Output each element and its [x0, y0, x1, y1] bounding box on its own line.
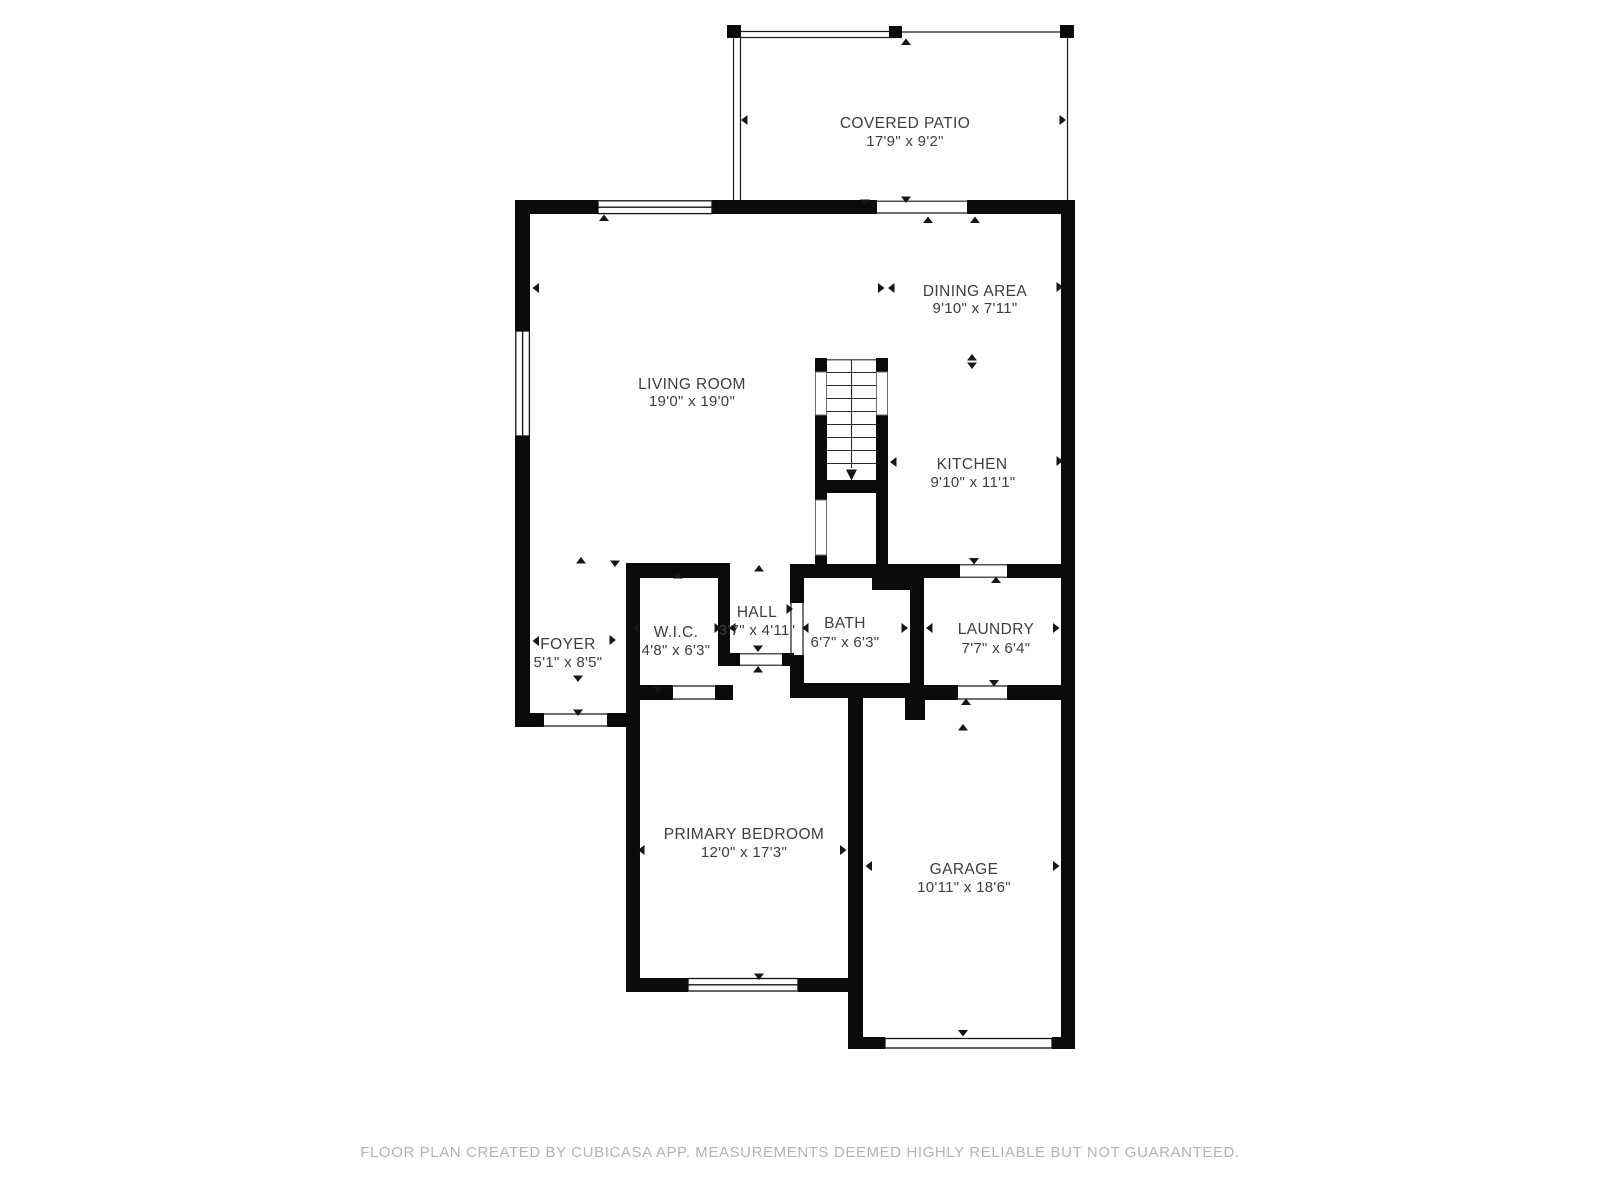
room-wic: W.I.C. 4'8" x 6'3" — [642, 624, 711, 659]
room-dims-living-room: 19'0" x 19'0" — [649, 393, 735, 410]
room-dims-wic: 4'8" x 6'3" — [642, 642, 711, 659]
room-dims-dining-area: 9'10" x 7'11" — [932, 300, 1017, 317]
room-dining-area: DINING AREA 9'10" x 7'11" — [923, 283, 1028, 317]
room-bath: BATH 6'7" x 6'3" — [811, 615, 880, 651]
room-dims-garage: 10'11" x 18'6" — [917, 879, 1011, 896]
room-dims-covered-patio: 17'9" x 9'2" — [866, 133, 944, 150]
footer-disclaimer: FLOOR PLAN CREATED BY CUBICASA APP. MEAS… — [360, 1144, 1240, 1161]
room-dims-hall: 3'7" x 4'11" — [719, 622, 795, 639]
room-label-garage: GARAGE — [930, 861, 999, 878]
room-dims-bath: 6'7" x 6'3" — [811, 634, 880, 651]
room-label-hall: HALL — [737, 604, 777, 621]
staircase — [815, 358, 888, 569]
room-label-kitchen: KITCHEN — [937, 456, 1008, 473]
floor-plan: COVERED PATIO 17'9" x 9'2" DINING AREA 9… — [0, 0, 1600, 1200]
room-label-wic: W.I.C. — [654, 624, 699, 641]
room-kitchen: KITCHEN 9'10" x 11'1" — [930, 456, 1015, 491]
room-dims-primary-bedroom: 12'0" x 17'3" — [701, 844, 787, 861]
patio-mid-post — [889, 26, 902, 38]
room-covered-patio: COVERED PATIO 17'9" x 9'2" — [840, 115, 970, 150]
room-garage: GARAGE 10'11" x 18'6" — [917, 861, 1011, 896]
room-label-foyer: FOYER — [540, 636, 595, 653]
stair-railing-opening — [816, 372, 827, 415]
room-dims-kitchen: 9'10" x 11'1" — [930, 474, 1015, 491]
room-label-living-room: LIVING ROOM — [638, 376, 746, 393]
room-label-covered-patio: COVERED PATIO — [840, 115, 970, 132]
stair-railing-opening — [877, 372, 888, 415]
room-living-room: LIVING ROOM 19'0" x 19'0" — [638, 376, 746, 410]
understair-door-opening — [816, 500, 827, 555]
room-primary-bedroom: PRIMARY BEDROOM 12'0" x 17'3" — [664, 826, 824, 861]
room-label-primary-bedroom: PRIMARY BEDROOM — [664, 826, 824, 843]
room-foyer: FOYER 5'1" x 8'5" — [534, 636, 603, 671]
room-label-bath: BATH — [824, 615, 866, 632]
room-label-laundry: LAUNDRY — [958, 621, 1035, 638]
floorplan-page: COVERED PATIO 17'9" x 9'2" DINING AREA 9… — [0, 0, 1600, 1200]
room-laundry: LAUNDRY 7'7" x 6'4" — [958, 621, 1035, 657]
stair-direction-arrow — [846, 470, 857, 481]
room-label-dining-area: DINING AREA — [923, 283, 1028, 300]
room-dims-foyer: 5'1" x 8'5" — [534, 654, 603, 671]
patio-corner-post — [1060, 25, 1074, 38]
patio-corner-post — [727, 25, 741, 38]
room-hall: HALL 3'7" x 4'11" — [719, 604, 795, 639]
room-dims-laundry: 7'7" x 6'4" — [962, 640, 1031, 657]
room-labels: COVERED PATIO 17'9" x 9'2" DINING AREA 9… — [534, 115, 1035, 896]
garage-door — [885, 1039, 1052, 1049]
